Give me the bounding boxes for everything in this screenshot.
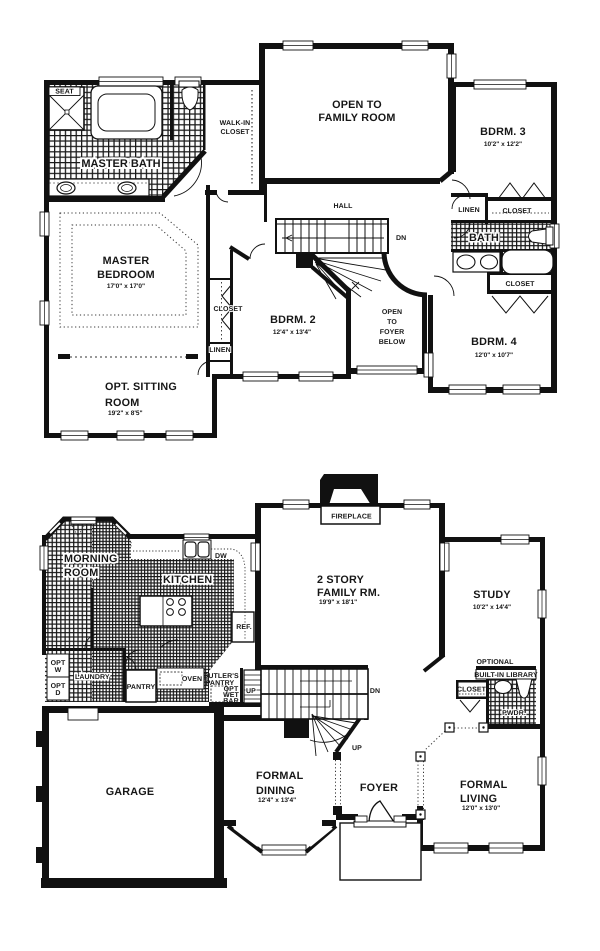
svg-text:12'0" x 13'0": 12'0" x 13'0" (462, 805, 500, 812)
svg-text:OPT: OPT (51, 660, 66, 667)
svg-text:OPTIONAL: OPTIONAL (477, 659, 515, 666)
svg-text:19'9" x 18'1": 19'9" x 18'1" (319, 599, 357, 606)
svg-text:BUILT-IN LIBRARY: BUILT-IN LIBRARY (474, 672, 538, 679)
svg-text:OPT: OPT (51, 683, 66, 690)
svg-text:10'2" x 12'2": 10'2" x 12'2" (484, 141, 522, 148)
svg-text:GARAGE: GARAGE (106, 786, 155, 798)
svg-text:BDRM. 2: BDRM. 2 (270, 314, 316, 326)
svg-text:DN: DN (396, 235, 406, 242)
svg-text:FOYER: FOYER (380, 329, 405, 336)
svg-text:UP: UP (352, 745, 362, 752)
svg-text:CLOSET: CLOSET (503, 208, 533, 215)
svg-text:TO: TO (387, 319, 397, 326)
svg-text:UP: UP (246, 688, 256, 695)
svg-text:CLOSET: CLOSET (506, 281, 536, 288)
svg-text:DINING: DINING (256, 785, 295, 797)
svg-text:BDRM. 3: BDRM. 3 (480, 126, 526, 138)
svg-text:BATH: BATH (469, 232, 499, 244)
svg-text:LIVING: LIVING (460, 793, 497, 805)
svg-text:OPEN: OPEN (382, 309, 402, 316)
svg-text:OVEN: OVEN (182, 676, 202, 683)
svg-text:FAMILY ROOM: FAMILY ROOM (318, 112, 395, 124)
svg-text:LINEN: LINEN (209, 347, 231, 354)
svg-text:FORMAL: FORMAL (460, 779, 508, 791)
svg-text:HALL: HALL (333, 203, 353, 210)
svg-text:CLOSET: CLOSET (457, 687, 487, 694)
svg-text:BUTLER'S: BUTLER'S (203, 673, 239, 680)
svg-text:ROOM: ROOM (64, 567, 98, 579)
svg-text:OPEN TO: OPEN TO (332, 99, 382, 111)
svg-text:STUDY: STUDY (473, 589, 511, 601)
svg-text:10'2" x 14'4": 10'2" x 14'4" (473, 604, 511, 611)
svg-text:D: D (55, 690, 60, 697)
svg-text:KITCHEN: KITCHEN (163, 574, 212, 586)
svg-text:FIREPLACE: FIREPLACE (331, 514, 372, 521)
svg-text:WALK-IN: WALK-IN (220, 120, 251, 127)
svg-text:BAR: BAR (223, 698, 238, 705)
svg-text:PWDR.: PWDR. (502, 710, 526, 717)
svg-text:PANTRY: PANTRY (127, 684, 156, 691)
svg-text:DW: DW (215, 553, 227, 560)
svg-text:ROOM: ROOM (105, 397, 139, 409)
svg-text:17'0" x 17'0": 17'0" x 17'0" (107, 283, 145, 290)
svg-text:CLOSET: CLOSET (221, 129, 251, 136)
svg-text:DN: DN (370, 688, 380, 695)
svg-text:19'2" x 8'5": 19'2" x 8'5" (108, 410, 143, 417)
svg-text:OPT. SITTING: OPT. SITTING (105, 381, 177, 393)
svg-text:BEDROOM: BEDROOM (97, 269, 155, 281)
svg-text:REF.: REF. (236, 624, 252, 631)
svg-text:FORMAL: FORMAL (256, 770, 304, 782)
svg-text:12'4" x 13'4": 12'4" x 13'4" (273, 329, 311, 336)
svg-text:MORNING: MORNING (64, 553, 118, 565)
svg-text:SEAT: SEAT (55, 89, 74, 96)
svg-text:12'0" x 10'7": 12'0" x 10'7" (475, 352, 513, 359)
svg-text:FOYER: FOYER (360, 782, 398, 794)
svg-text:MASTER BATH: MASTER BATH (81, 158, 160, 170)
svg-text:LAUNDRY: LAUNDRY (75, 674, 110, 681)
svg-text:W: W (55, 667, 62, 674)
svg-text:12'4" x 13'4": 12'4" x 13'4" (258, 797, 296, 804)
svg-text:BELOW: BELOW (379, 339, 406, 346)
svg-text:BDRM. 4: BDRM. 4 (471, 336, 517, 348)
svg-text:2 STORY: 2 STORY (317, 574, 365, 586)
svg-text:MASTER: MASTER (103, 255, 150, 267)
svg-text:CLOSET: CLOSET (214, 306, 244, 313)
svg-text:FAMILY RM.: FAMILY RM. (317, 587, 380, 599)
svg-text:LINEN: LINEN (458, 207, 480, 214)
